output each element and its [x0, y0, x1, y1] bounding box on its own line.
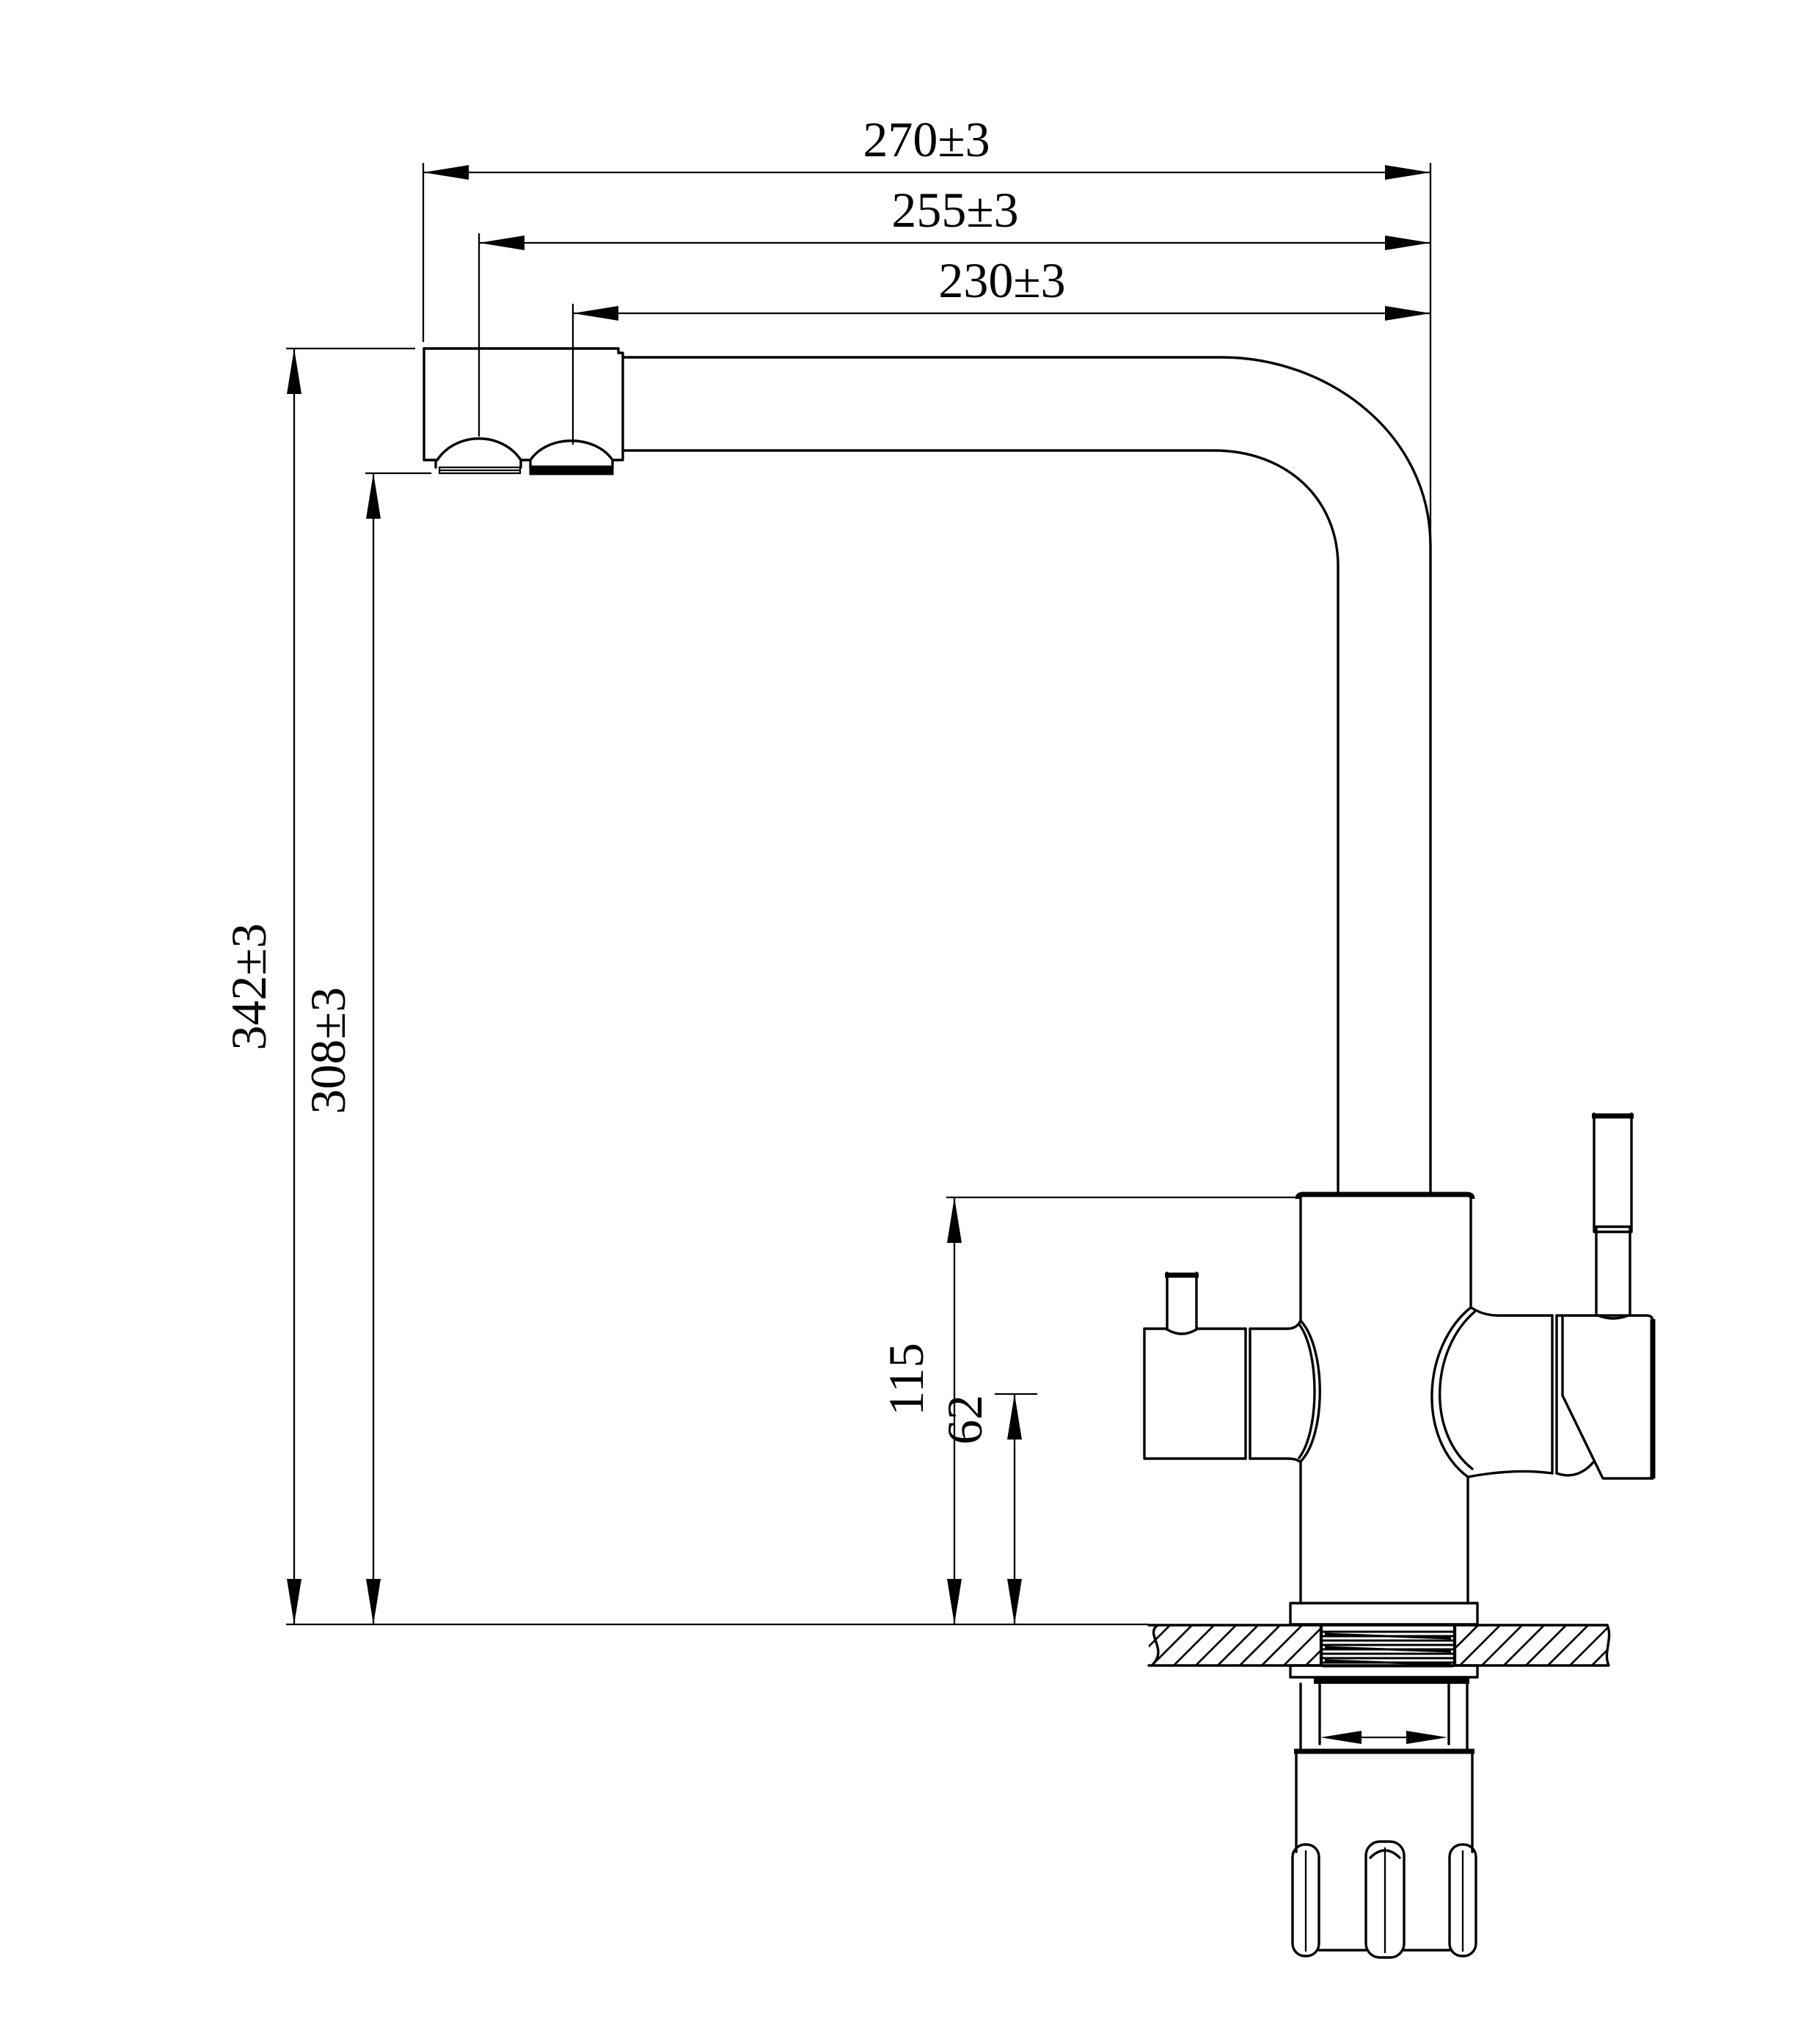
hatch-right: [1438, 1625, 1632, 1665]
spout-head-left: [424, 349, 436, 467]
hose-nut-sides: [1296, 1754, 1472, 1852]
spout-head-top-right: [424, 349, 623, 450]
left-knob-sides: [1167, 1273, 1196, 1329]
arrowhead-bottom-115: [947, 1579, 962, 1624]
arrowhead-bottom-308: [366, 1579, 381, 1624]
dim-label-255: 255±3: [891, 182, 1018, 238]
faucet-body: [1298, 1194, 1474, 1603]
arrowhead-top-308: [366, 473, 381, 519]
left-branch-bottom-edge: [1250, 1459, 1301, 1462]
shank-outer-walls: [1301, 1684, 1467, 1750]
mounting-flange: [1290, 1603, 1477, 1624]
dim-270-overall-width: 270±3: [423, 112, 1430, 544]
spout-head-right-lip: [613, 450, 623, 467]
hose-nut: [1293, 1751, 1476, 1957]
right-joint-lines: [1552, 1316, 1557, 1473]
countertop-break-right: [1607, 1625, 1609, 1665]
right-lever-handle: [1468, 1114, 1653, 1478]
arrowhead-bottom-62: [1007, 1579, 1022, 1624]
right-branch-top-edge: [1471, 1307, 1552, 1316]
dim-230-width: 230±3: [573, 252, 1430, 445]
spout-tube: [623, 357, 1430, 1193]
right-branch-bottom-edge: [1468, 1471, 1552, 1477]
arrowhead-top-115: [947, 1197, 962, 1243]
body-right-waist-outer: [1440, 1312, 1474, 1469]
diameter-arrowhead-right: [1406, 1731, 1447, 1744]
faucet-technical-drawing: 270±3 255±3 230±3 342±3 308±3: [0, 0, 1820, 2036]
spout-tube-outer-wall: [623, 357, 1430, 1193]
aerator-rim-right: [532, 468, 611, 472]
body-left-waist-inner: [1301, 1321, 1320, 1462]
arrowhead-right-230: [1385, 306, 1430, 321]
arrowhead-right-270: [1385, 165, 1430, 180]
dim-label-115: 115: [878, 1343, 934, 1415]
body-right-waist-inner: [1432, 1307, 1471, 1477]
diameter-arrow: [1320, 1731, 1447, 1744]
dim-label-62: 62: [937, 1395, 993, 1445]
arrowhead-left-230: [573, 306, 618, 321]
arrowhead-left-270: [423, 165, 469, 180]
left-knob-base-arc: [1167, 1329, 1196, 1334]
left-valve-joint-lines: [1246, 1329, 1250, 1459]
spout-head-center-lip: [521, 460, 530, 467]
arrowhead-top-62: [1007, 1394, 1022, 1440]
aerator-rim-left: [439, 467, 520, 473]
dim-342-overall-height: 342±3: [221, 349, 415, 1624]
left-valve-body: [1144, 1329, 1246, 1459]
hatch-left: [1130, 1625, 1346, 1665]
page: 270±3 255±3 230±3 342±3 308±3: [0, 0, 1820, 2036]
diameter-arrowhead-left: [1320, 1731, 1362, 1744]
dim-label-308: 308±3: [300, 987, 356, 1114]
left-branch-top-edge: [1250, 1321, 1301, 1329]
thread-shank: [1290, 1625, 1477, 1750]
aerator-dome-left: [437, 439, 521, 460]
hose-nut-rib-highlights: [1306, 1847, 1463, 1953]
arrowhead-right-255: [1385, 236, 1430, 250]
bell-skirt-arc: [1557, 1462, 1593, 1475]
dim-label-342: 342±3: [221, 923, 277, 1050]
arrowhead-bottom-342: [287, 1579, 301, 1624]
arrowhead-top-342: [287, 349, 301, 394]
spout-head: [424, 349, 623, 473]
arrowhead-left-255: [479, 236, 525, 250]
dim-label-270: 270±3: [863, 112, 990, 167]
bell-left-outline: [1563, 1316, 1653, 1478]
lever-stem-sides: [1596, 1228, 1630, 1316]
dim-308-spout-height: 308±3: [300, 473, 431, 1624]
aerator-dome-right: [530, 441, 613, 460]
lever-grip-body: [1594, 1114, 1631, 1232]
body-top-edge: [1298, 1194, 1472, 1199]
left-valve-handle: [1144, 1273, 1301, 1462]
spout-tube-inner-wall: [623, 450, 1338, 1193]
rubber-gasket: [1314, 1677, 1469, 1684]
dim-label-230: 230±3: [938, 252, 1065, 308]
